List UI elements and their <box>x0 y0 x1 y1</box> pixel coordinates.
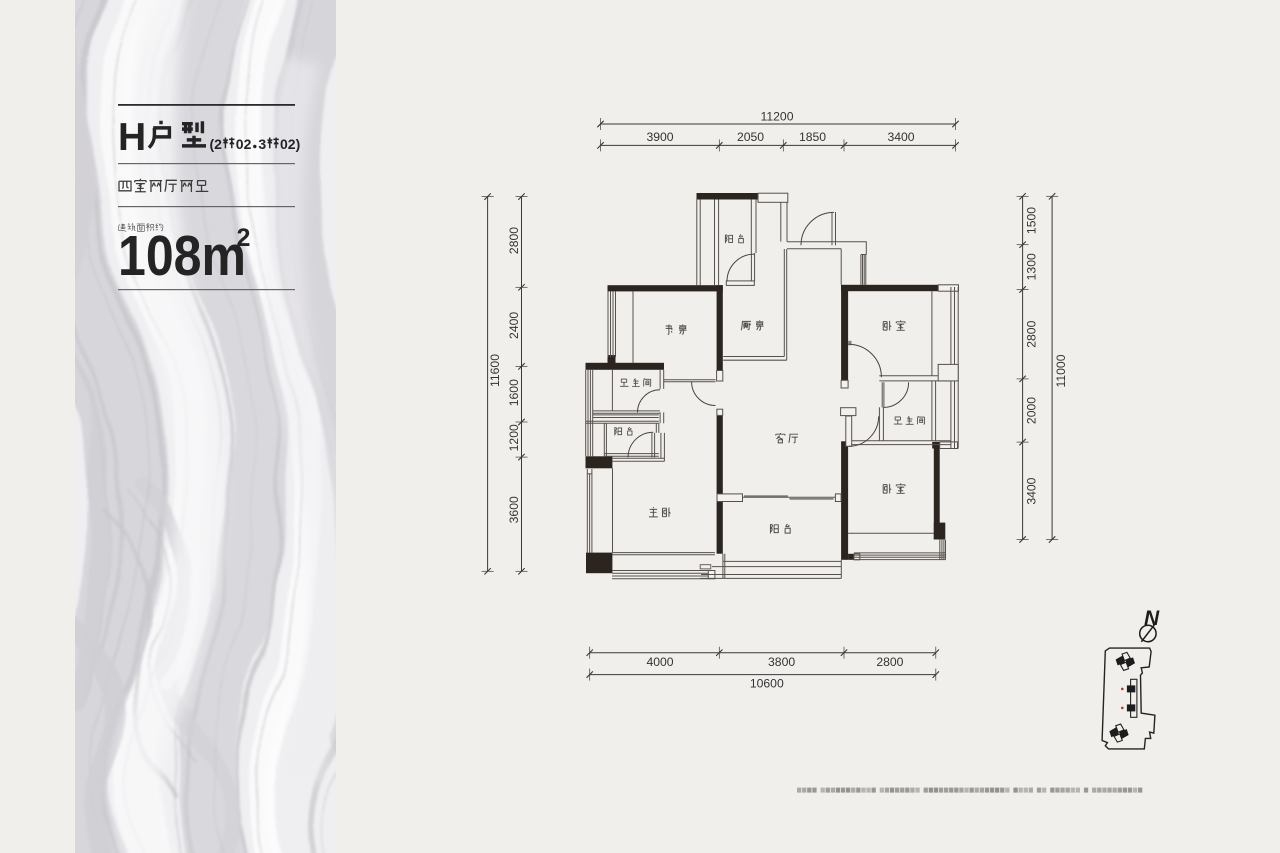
svg-text:2800: 2800 <box>1025 320 1039 347</box>
svg-text:108m: 108m <box>118 224 246 288</box>
svg-text:1850: 1850 <box>799 130 826 144</box>
svg-text:3600: 3600 <box>507 496 521 523</box>
svg-text:1600: 1600 <box>507 379 521 406</box>
svg-text:4000: 4000 <box>646 655 673 669</box>
svg-text:3400: 3400 <box>1025 477 1039 504</box>
svg-text:2050: 2050 <box>737 130 764 144</box>
svg-text:2800: 2800 <box>876 655 903 669</box>
svg-text:1200: 1200 <box>507 424 521 451</box>
svg-text:02): 02) <box>280 136 300 152</box>
svg-text:(2: (2 <box>210 136 223 152</box>
svg-text:02: 02 <box>236 136 252 152</box>
svg-text:2: 2 <box>237 224 251 252</box>
svg-text:1300: 1300 <box>1025 253 1039 280</box>
svg-text:3: 3 <box>258 136 266 152</box>
svg-text:2000: 2000 <box>1025 397 1039 424</box>
svg-text:3800: 3800 <box>768 655 795 669</box>
svg-text:1500: 1500 <box>1025 207 1039 234</box>
svg-text:3900: 3900 <box>646 130 673 144</box>
svg-text:11600: 11600 <box>488 354 502 387</box>
svg-text:11000: 11000 <box>1054 354 1068 387</box>
svg-text:3400: 3400 <box>887 130 914 144</box>
svg-text:2800: 2800 <box>507 227 521 254</box>
svg-text:H: H <box>118 116 146 159</box>
svg-text:11200: 11200 <box>761 110 794 124</box>
svg-text:2400: 2400 <box>507 312 521 339</box>
svg-text:10600: 10600 <box>750 677 784 691</box>
